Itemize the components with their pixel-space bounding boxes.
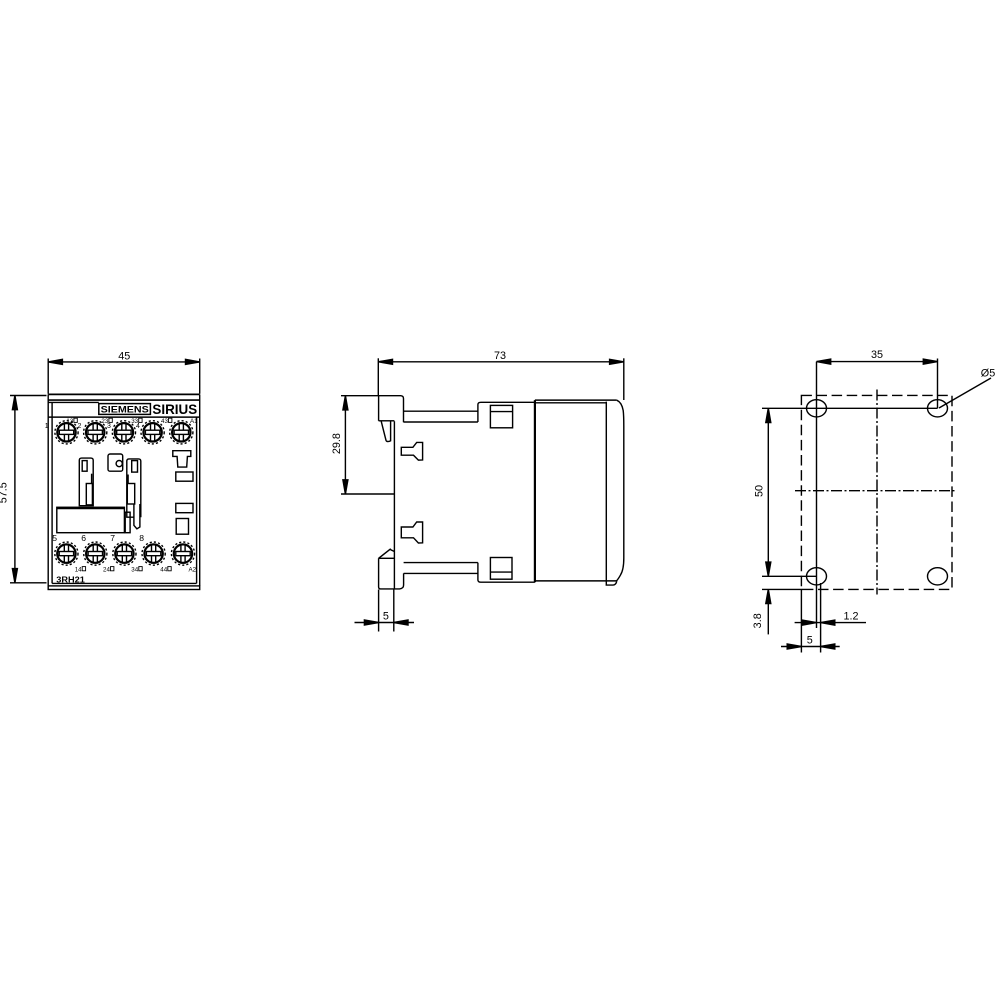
svg-text:45: 45 bbox=[118, 350, 130, 362]
svg-text:3.8: 3.8 bbox=[752, 613, 764, 628]
svg-text:SIEMENS: SIEMENS bbox=[101, 404, 150, 415]
svg-text:3RH21: 3RH21 bbox=[56, 574, 85, 584]
svg-text:1: 1 bbox=[45, 423, 49, 430]
svg-text:7: 7 bbox=[110, 533, 115, 543]
svg-text:43: 43 bbox=[161, 418, 168, 425]
svg-text:29.8: 29.8 bbox=[331, 433, 343, 454]
svg-text:SIRIUS: SIRIUS bbox=[152, 402, 197, 417]
svg-text:A2: A2 bbox=[189, 567, 197, 574]
svg-text:73: 73 bbox=[494, 350, 506, 362]
svg-text:34: 34 bbox=[131, 567, 138, 574]
svg-text:13: 13 bbox=[66, 418, 73, 425]
svg-text:14: 14 bbox=[75, 567, 82, 574]
svg-text:Ø5: Ø5 bbox=[981, 368, 995, 380]
svg-text:2: 2 bbox=[78, 423, 82, 430]
svg-text:35: 35 bbox=[871, 349, 883, 361]
svg-text:24: 24 bbox=[103, 567, 110, 574]
svg-text:A1: A1 bbox=[190, 418, 198, 425]
svg-text:5: 5 bbox=[807, 634, 813, 646]
svg-text:5: 5 bbox=[52, 533, 57, 543]
svg-text:4: 4 bbox=[136, 423, 140, 430]
svg-text:44: 44 bbox=[160, 567, 167, 574]
svg-text:6: 6 bbox=[81, 533, 86, 543]
svg-text:8: 8 bbox=[139, 533, 144, 543]
svg-text:50: 50 bbox=[754, 485, 766, 497]
svg-text:1.2: 1.2 bbox=[843, 611, 858, 623]
svg-text:5: 5 bbox=[383, 610, 389, 622]
svg-text:3: 3 bbox=[107, 423, 111, 430]
svg-text:57.5: 57.5 bbox=[0, 482, 10, 503]
